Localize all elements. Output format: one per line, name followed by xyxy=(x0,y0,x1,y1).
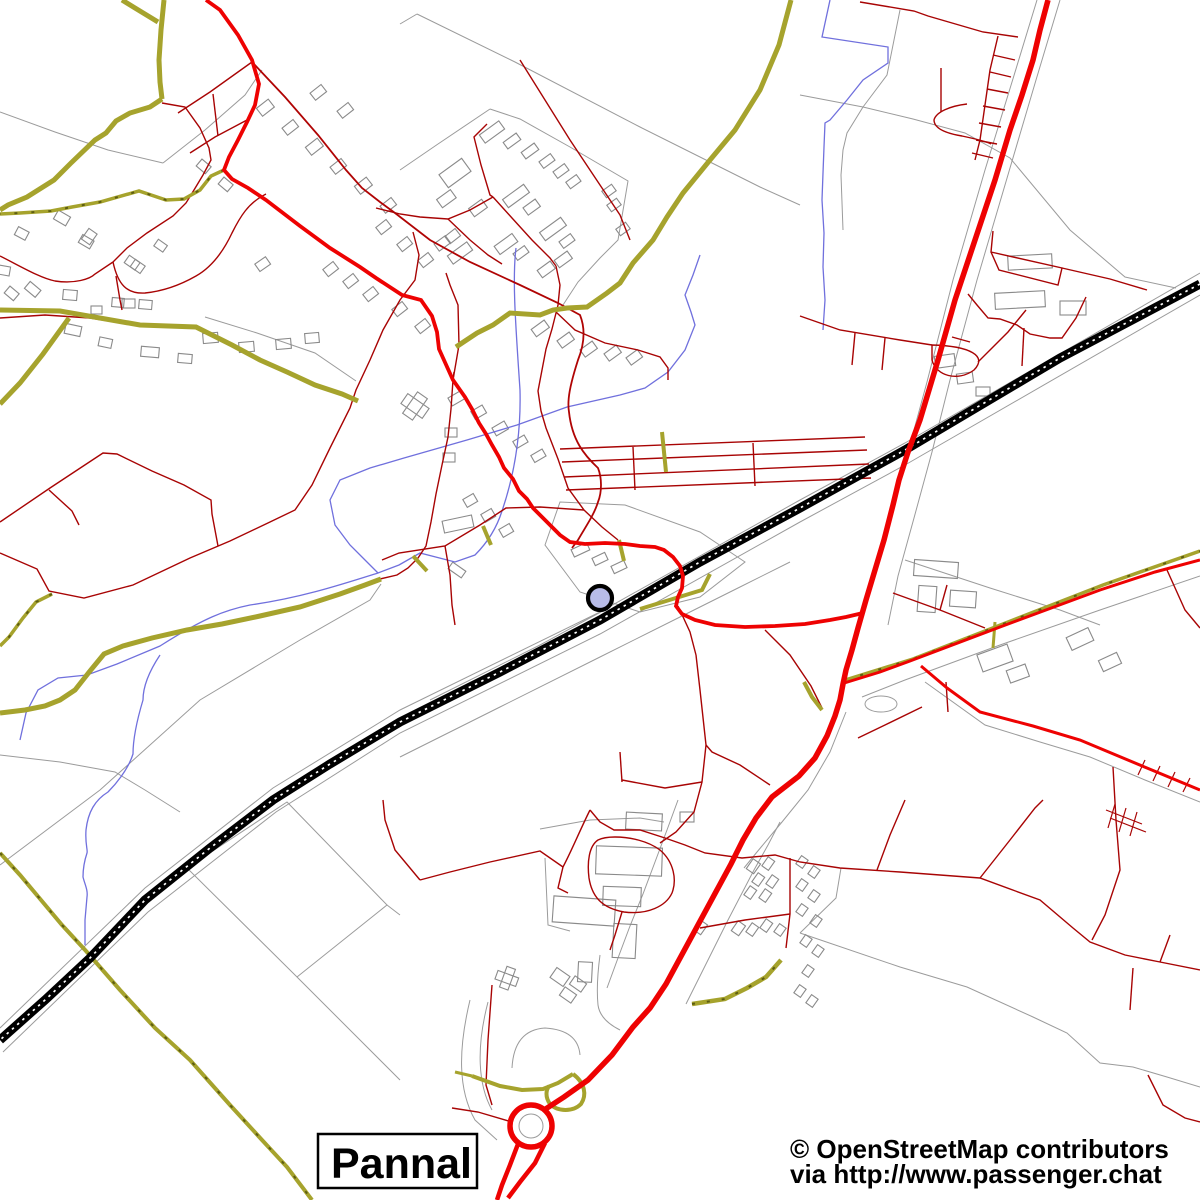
svg-text:Pannal: Pannal xyxy=(331,1140,472,1188)
svg-text:via http://www.passenger.chat: via http://www.passenger.chat xyxy=(790,1159,1162,1189)
